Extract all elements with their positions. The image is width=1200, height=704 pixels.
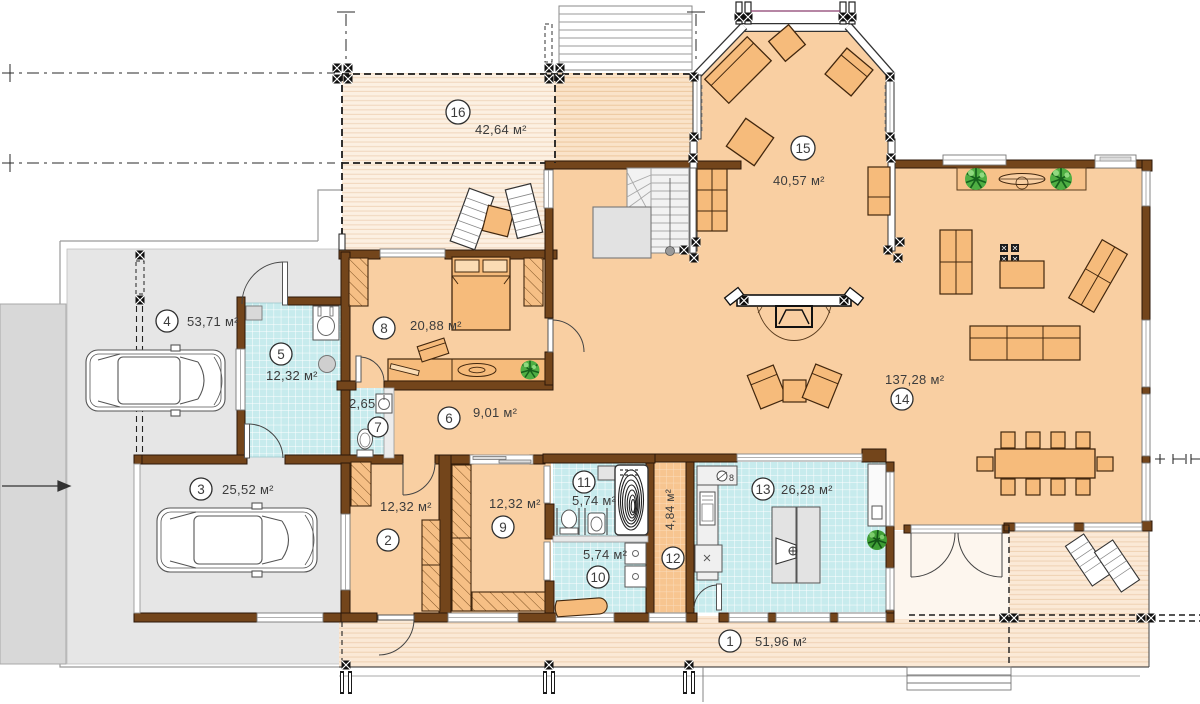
svg-text:2,65: 2,65 — [349, 396, 376, 411]
svg-text:13: 13 — [755, 482, 770, 497]
svg-text:8: 8 — [380, 321, 388, 336]
svg-text:6: 6 — [445, 411, 453, 426]
svg-text:10: 10 — [590, 570, 605, 585]
svg-text:16: 16 — [450, 105, 465, 120]
svg-text:53,71 м²: 53,71 м² — [187, 314, 239, 329]
svg-text:12,32 м²: 12,32 м² — [489, 496, 541, 511]
svg-text:11: 11 — [577, 475, 591, 490]
svg-text:4: 4 — [163, 314, 171, 329]
svg-text:15: 15 — [795, 141, 810, 156]
svg-text:25,52 м²: 25,52 м² — [222, 482, 274, 497]
svg-text:9,01 м²: 9,01 м² — [473, 405, 518, 420]
svg-text:40,57 м²: 40,57 м² — [773, 173, 825, 188]
svg-text:1: 1 — [726, 634, 734, 649]
svg-text:7: 7 — [374, 420, 382, 435]
svg-text:3: 3 — [197, 482, 205, 497]
svg-text:9: 9 — [499, 520, 507, 535]
svg-text:51,96 м²: 51,96 м² — [755, 634, 807, 649]
svg-text:20,88 м²: 20,88 м² — [410, 318, 462, 333]
svg-text:42,64 м²: 42,64 м² — [475, 122, 527, 137]
svg-text:12,32 м²: 12,32 м² — [266, 368, 318, 383]
svg-text:12: 12 — [665, 551, 680, 566]
svg-text:14: 14 — [894, 392, 910, 407]
svg-text:5,74 м²: 5,74 м² — [572, 493, 617, 508]
svg-text:2: 2 — [384, 533, 392, 548]
svg-text:5,74 м²: 5,74 м² — [583, 547, 628, 562]
svg-text:8: 8 — [729, 473, 734, 483]
svg-text:137,28 м²: 137,28 м² — [885, 372, 945, 387]
svg-text:4,84 м²: 4,84 м² — [663, 489, 677, 530]
svg-text:26,28 м²: 26,28 м² — [781, 482, 833, 497]
svg-text:5: 5 — [277, 347, 285, 362]
svg-text:12,32 м²: 12,32 м² — [380, 499, 432, 514]
